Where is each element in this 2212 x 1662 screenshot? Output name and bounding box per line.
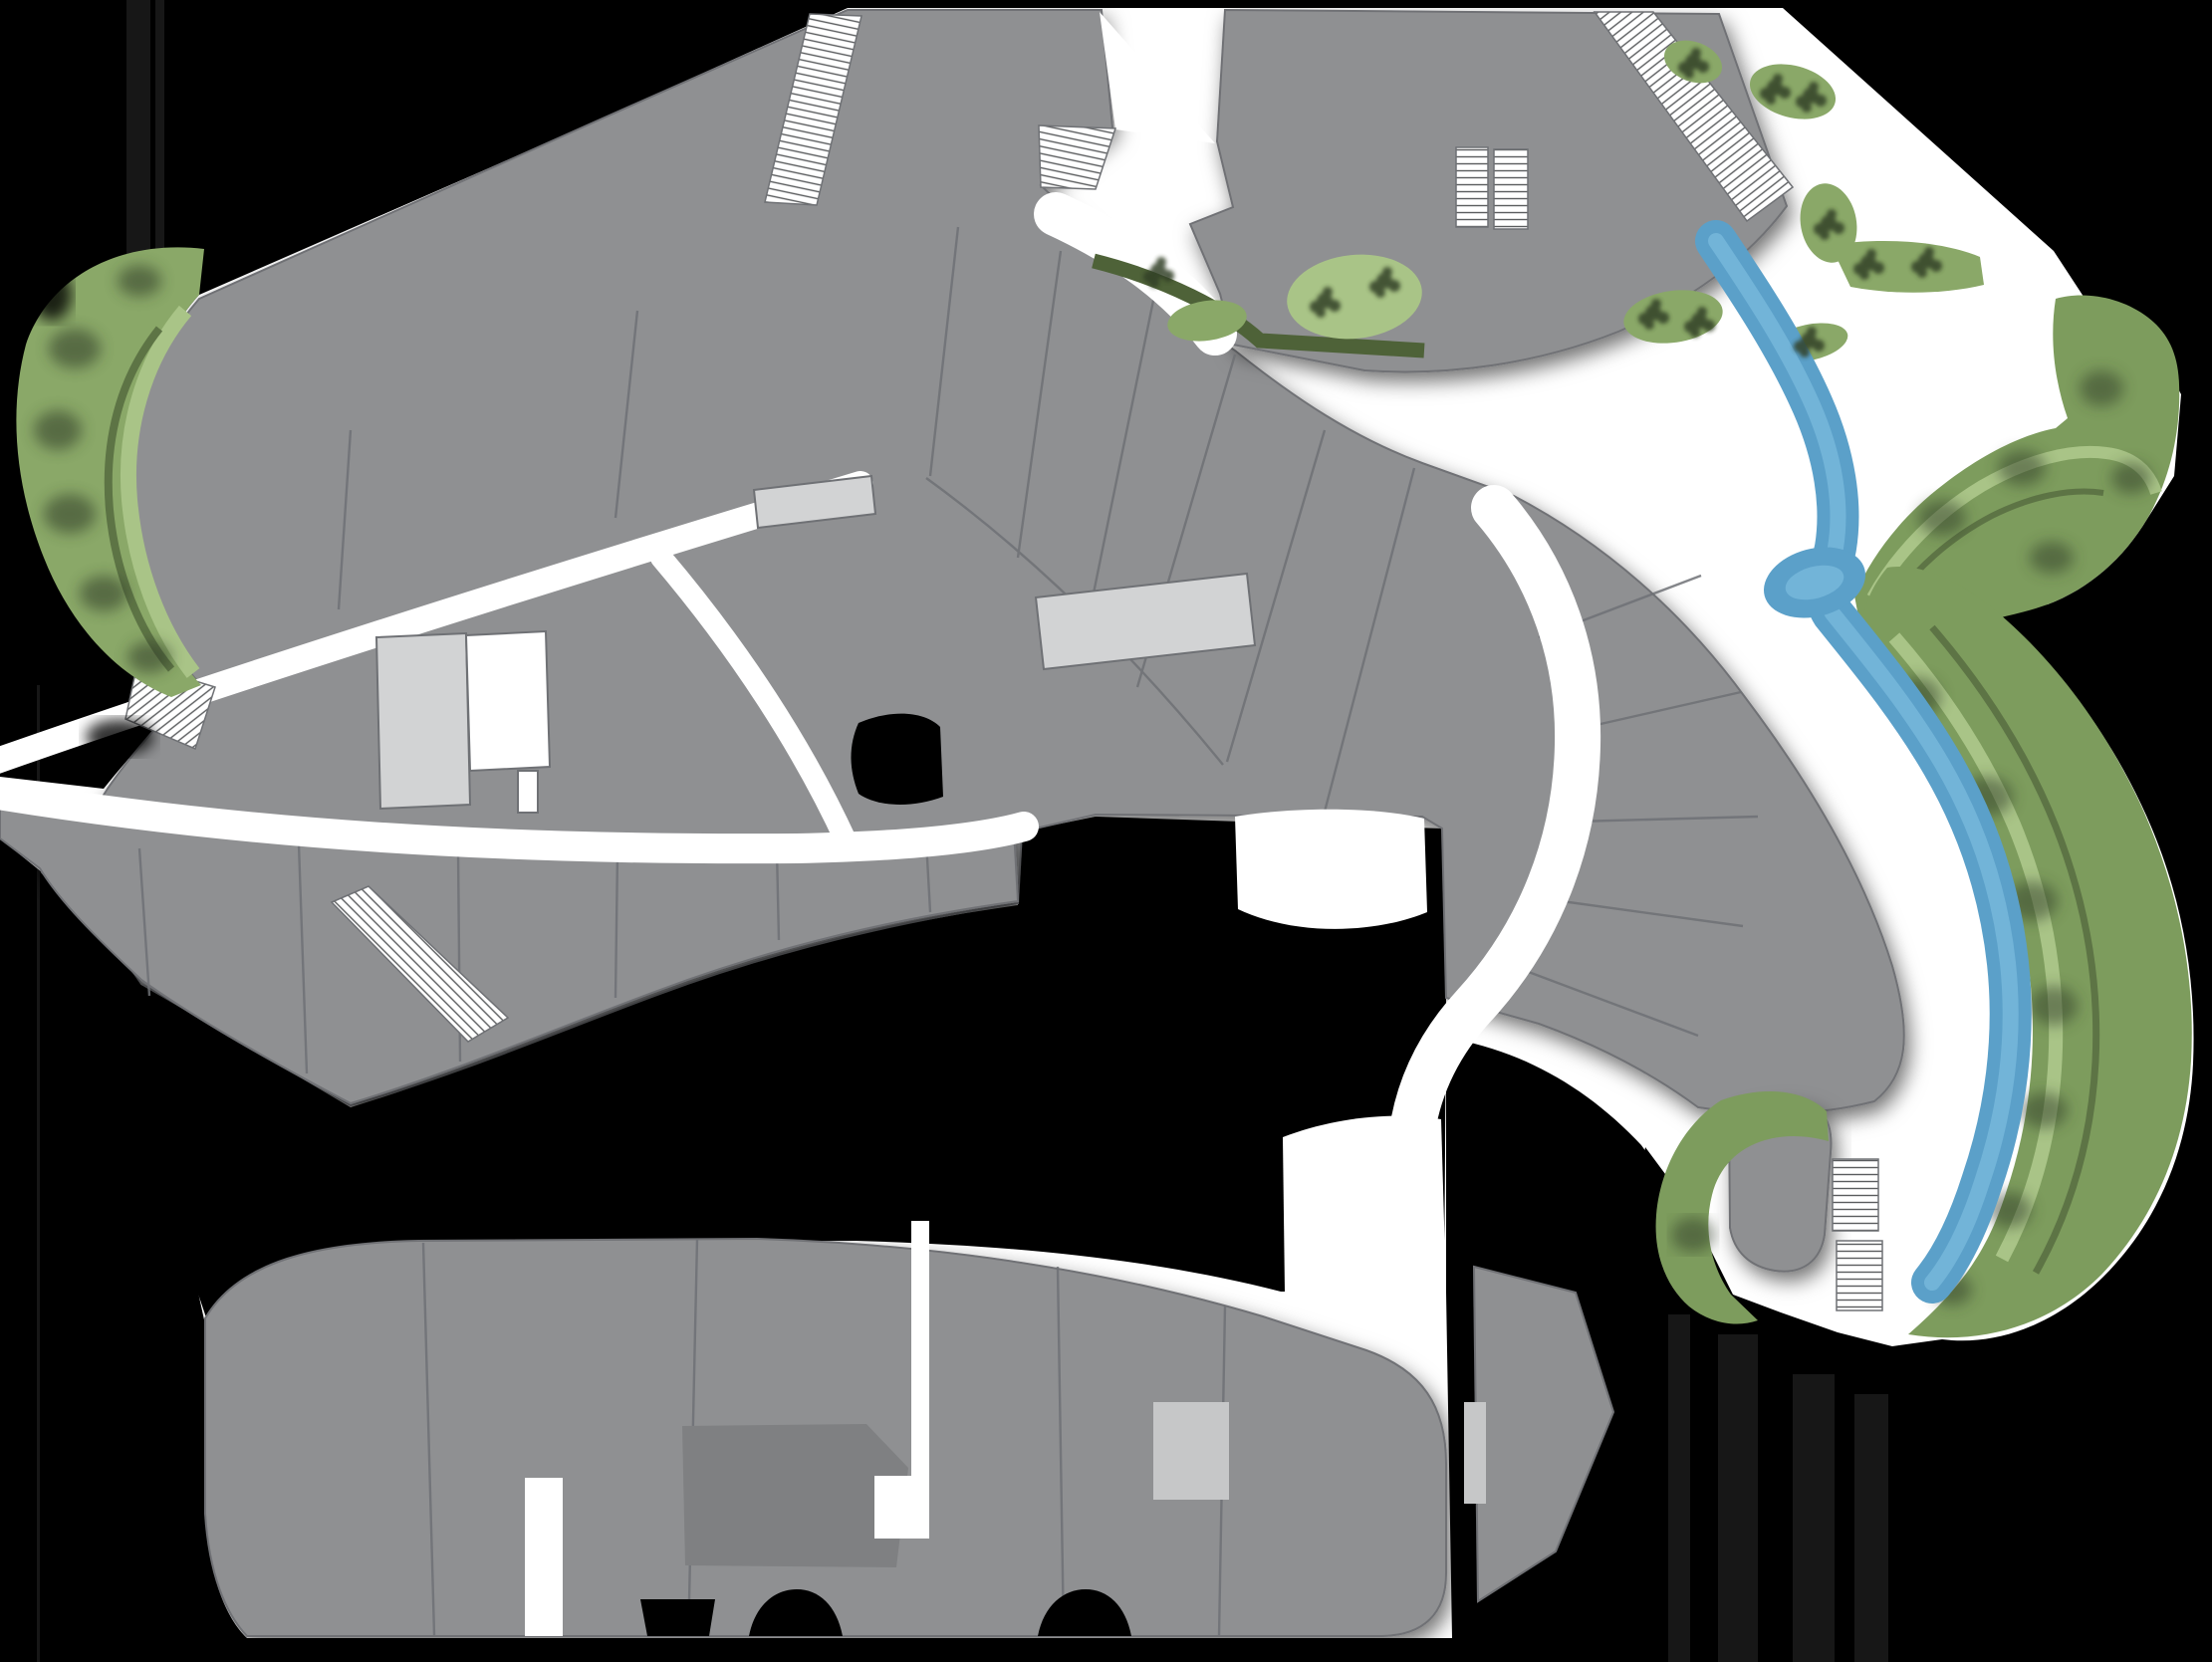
- terrace-shade: [2111, 462, 2151, 494]
- void-wedge: [852, 714, 944, 805]
- terrace-end-shadow: [32, 269, 72, 321]
- central-plaza: [1235, 810, 1427, 929]
- terrace-end-shadow: [86, 719, 153, 755]
- terrace-shade: [127, 641, 171, 673]
- terrace-shade: [2030, 986, 2078, 1026]
- dark-bar: [1854, 1394, 1888, 1662]
- courtyard-west: [466, 631, 550, 771]
- dark-bar: [1793, 1374, 1835, 1662]
- site-plan-stage: [0, 0, 2212, 1662]
- courtyard-slot: [518, 771, 538, 813]
- terrace-shade: [2020, 1092, 2068, 1128]
- stairs-plaza-a: [1456, 147, 1488, 227]
- dark-bar: [1668, 1314, 1690, 1662]
- terrace-shade: [44, 494, 96, 534]
- stairs-southeast-b: [1837, 1241, 1882, 1310]
- stairs-plaza-b: [1494, 149, 1528, 229]
- site-plan-canvas: [0, 0, 2212, 1662]
- bottom-notch: [640, 1599, 715, 1636]
- terrace-shade: [49, 329, 101, 368]
- terrace-shade: [118, 265, 161, 297]
- inner-dark-block: [682, 1424, 908, 1567]
- terrace-shade: [80, 576, 127, 611]
- dark-bar: [1718, 1334, 1758, 1662]
- terrace-shade: [2080, 370, 2123, 406]
- terrace-shade: [1671, 1217, 1715, 1253]
- terrace-shade: [34, 410, 82, 450]
- inner-light-block: [1153, 1402, 1229, 1500]
- slot-street-b: [525, 1478, 563, 1636]
- terrace-shade: [1998, 450, 2046, 486]
- slot-street-a2: [874, 1476, 928, 1539]
- terrace-shade: [1918, 500, 1966, 536]
- south-white-band: [1283, 1116, 1446, 1293]
- diamond-light-tab: [1464, 1402, 1486, 1504]
- terrace-shade: [2030, 542, 2074, 574]
- light-building-west: [376, 633, 470, 809]
- stairs-southeast-a: [1833, 1159, 1878, 1231]
